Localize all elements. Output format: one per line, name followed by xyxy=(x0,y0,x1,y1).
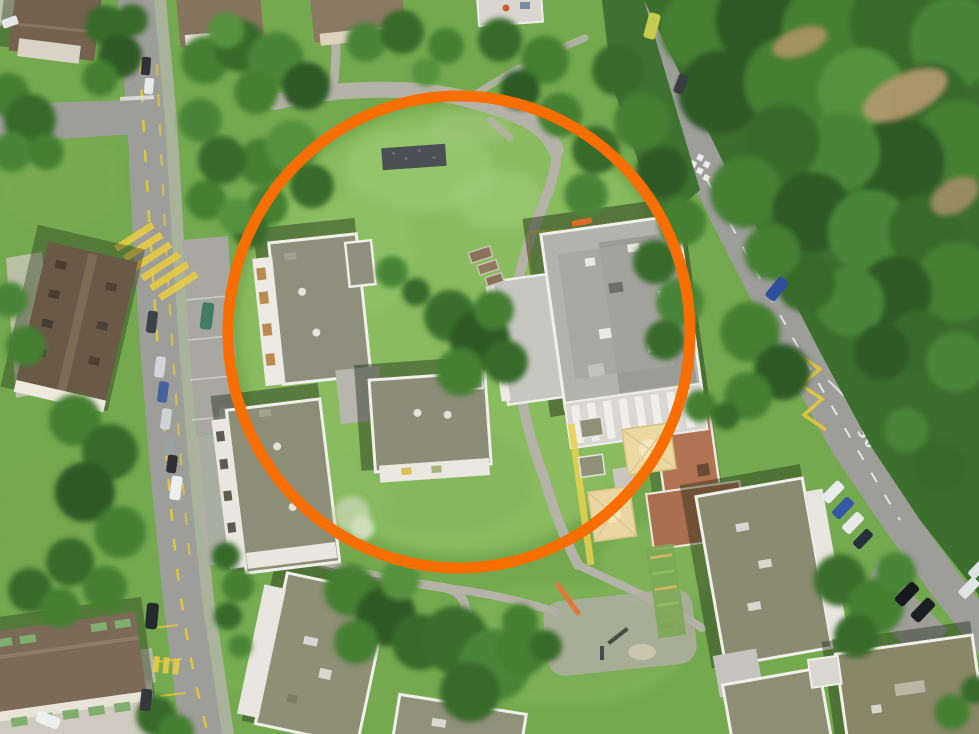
dark-van xyxy=(145,603,159,630)
stone-wall xyxy=(381,144,446,170)
building-a xyxy=(249,216,385,386)
aerial-viewport: 30 xyxy=(0,0,979,734)
aerial-photo: 30 xyxy=(0,0,979,734)
